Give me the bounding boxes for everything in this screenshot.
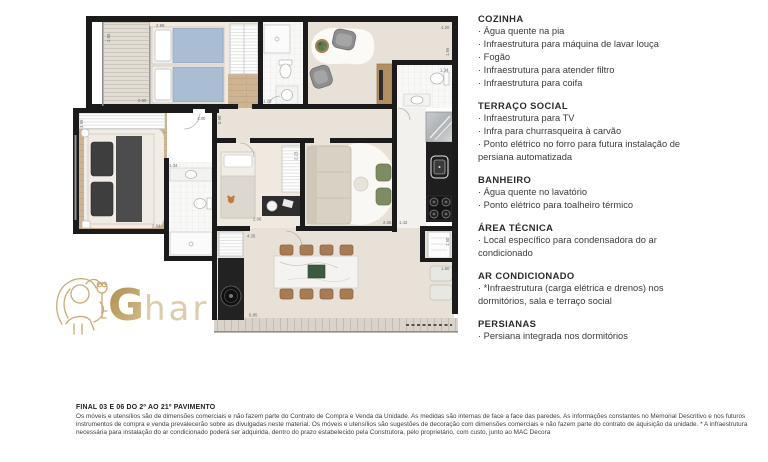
toilet-icon	[444, 72, 449, 85]
spec-item: · Água quente no lavatório	[478, 186, 706, 199]
spec-section-title: PERSIANAS	[478, 317, 706, 330]
dimension-label: 2.23	[294, 151, 299, 160]
disclaimer: FINAL 03 E 06 DO 2º AO 21º PAVIMENTO Os …	[76, 404, 764, 437]
lounge-chair-icon	[430, 285, 452, 300]
disclaimer-title: FINAL 03 E 06 DO 2º AO 21º PAVIMENTO	[76, 404, 764, 411]
brand-logo: G har	[50, 260, 225, 342]
spec-section-persianas: PERSIANAS · Persiana integrada nos dormi…	[478, 317, 706, 343]
sofa-icon	[307, 146, 351, 224]
dimension-label: 4.35	[247, 234, 256, 239]
dimension-label: 1.80	[441, 266, 450, 271]
dimension-label: 2.56	[383, 220, 392, 225]
shower-icon	[170, 232, 212, 255]
tv-icon	[379, 70, 383, 100]
spec-section-title: BANHEIRO	[478, 173, 706, 186]
spec-item: · Fogão	[478, 51, 706, 64]
spec-section-cozinha: COZINHA · Água quente na pia · Infraestr…	[478, 12, 706, 90]
dimension-label: 0.90	[217, 115, 222, 124]
tv-room-furniture	[307, 143, 396, 225]
wardrobe-icon	[282, 146, 302, 192]
dimension-label: 4.20	[441, 25, 450, 30]
stove-icon	[428, 196, 451, 220]
spec-section-area-tecnica: ÁREA TÉCNICA · Local específico para con…	[478, 221, 706, 260]
spec-item: · Ponto elétrico para toalheiro térmico	[478, 199, 706, 212]
hall-floor	[215, 108, 392, 142]
dimension-label: 6.85	[249, 313, 258, 318]
wardrobe-icon	[230, 24, 258, 74]
dimension-label: 2.06	[253, 217, 262, 222]
dimension-label: 4.00	[197, 116, 206, 121]
logo-text: har	[144, 289, 209, 329]
spec-item: · Infraestrutura para coifa	[478, 77, 706, 90]
spec-item: · Ponto elétrico no forro para futura in…	[478, 138, 706, 164]
spec-item: · Persiana integrada nos dormitórios	[478, 330, 706, 343]
double-bed-icon	[88, 134, 154, 224]
spec-list: COZINHA · Água quente na pia · Infraestr…	[478, 12, 706, 352]
disclaimer-body: Os móveis e utensílios são de dimensões …	[76, 413, 764, 438]
wardrobe-icon	[79, 113, 165, 129]
spec-item: · Infraestrutura para máquina de lavar l…	[478, 38, 706, 51]
kitchen-corridor-floor	[394, 108, 426, 228]
dimension-label: 1.55	[445, 47, 450, 56]
toilet-icon	[207, 198, 212, 209]
terrace-deck	[214, 318, 458, 332]
green-chair-icon	[376, 164, 391, 181]
kitchen-furniture	[426, 112, 453, 222]
centerpiece-icon	[308, 265, 325, 278]
dimension-label: 3.95	[79, 119, 84, 128]
coffee-table-icon	[354, 177, 368, 191]
single-bed-icon	[221, 152, 255, 218]
shower-icon	[264, 25, 290, 53]
dimension-label: 1.29	[263, 99, 272, 104]
spec-section-title: ÁREA TÉCNICA	[478, 221, 706, 234]
master-bedroom-furniture	[79, 113, 165, 228]
bedroom2-entry-floor	[228, 74, 260, 108]
spec-section-banheiro: BANHEIRO · Água quente no lavatório · Po…	[478, 173, 706, 212]
bbq-cabinet-icon	[219, 232, 243, 256]
spec-section-ar-condicionado: AR CONDICIONADO · *Infraestrutura (carga…	[478, 269, 706, 308]
dimension-label: 0.90	[138, 98, 147, 103]
spec-section-terraco-social: TERRAÇO SOCIAL · Infraestrutura para TV …	[478, 99, 706, 164]
spec-item: · Infra para churrasqueira à carvão	[478, 125, 706, 138]
ottoman-icon	[82, 221, 90, 228]
logo-initial: G	[108, 280, 144, 331]
dimension-label: 2.64	[152, 224, 161, 229]
spec-section-title: COZINHA	[478, 12, 706, 25]
spec-item: · Água quente na pia	[478, 25, 706, 38]
dimension-label: 1.34	[169, 163, 178, 168]
spec-item: · Local específico para condensadora do …	[478, 234, 706, 260]
spec-section-title: TERRAÇO SOCIAL	[478, 99, 706, 112]
side-table-icon	[81, 129, 89, 137]
spec-item: · *Infraestrutura (carga elétrica e dren…	[478, 282, 706, 308]
lion-key-logo-icon	[57, 279, 107, 334]
chair-icon	[267, 201, 277, 211]
dimension-label: 2.95	[106, 33, 111, 42]
spec-section-title: AR CONDICIONADO	[478, 269, 706, 282]
green-chair-icon	[376, 188, 391, 205]
dimension-label: 1.50	[445, 237, 450, 246]
dimension-label: 1.42	[399, 220, 408, 225]
dimension-label: 1.34	[440, 68, 449, 73]
spec-item: · Infraestrutura para atender filtro	[478, 64, 706, 77]
dimension-label: 2.99	[156, 23, 165, 28]
spec-item: · Infraestrutura para TV	[478, 112, 706, 125]
